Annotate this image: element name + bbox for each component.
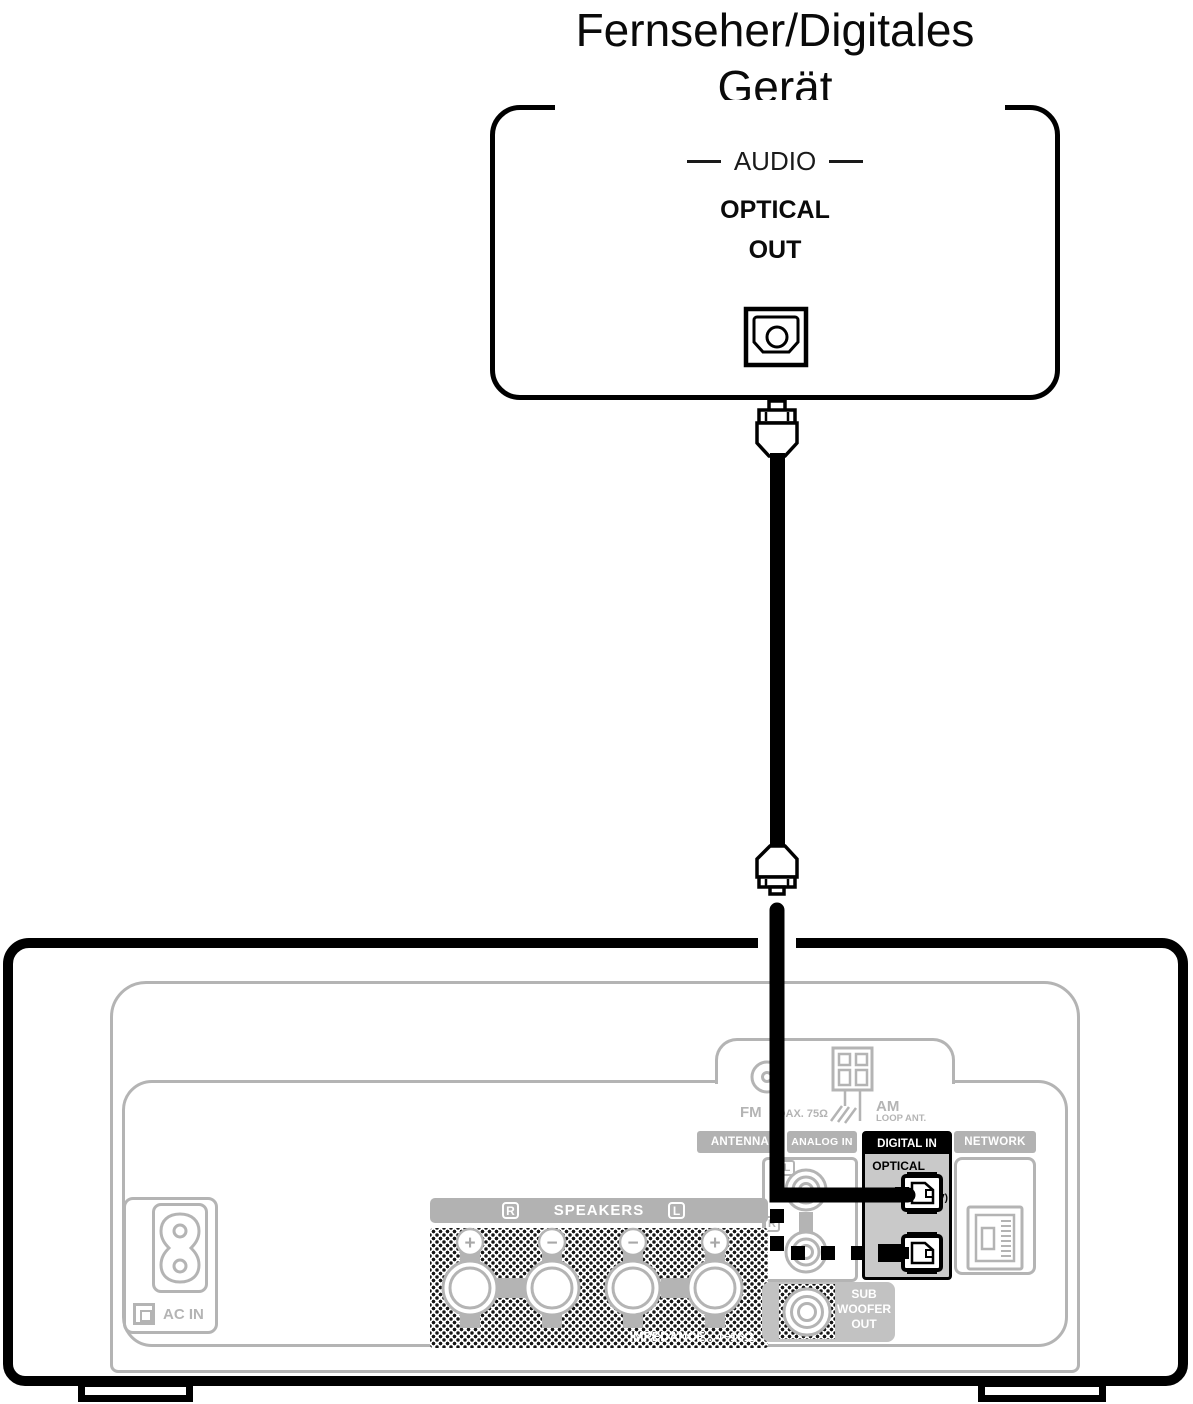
terminal-sign-plus-r: + xyxy=(464,1233,475,1254)
connection-diagram: Fernseher/Digitales Gerät AUDIO OPTICAL … xyxy=(0,0,1193,1404)
terminal-sign-minus-r: − xyxy=(546,1233,557,1254)
terminal-sign-minus-l: − xyxy=(627,1233,638,1254)
ac-figure8-inlet-icon xyxy=(161,1214,199,1282)
optical-cable-upper xyxy=(770,453,785,848)
speaker-terminals-icon: + − − + xyxy=(443,1229,742,1328)
tv-optical-out-port-icon xyxy=(746,309,806,365)
subwoofer-rca-jack-icon xyxy=(784,1289,830,1335)
ground-symbol-icon xyxy=(831,1106,856,1123)
terminal-sign-plus-l: + xyxy=(709,1233,720,1254)
diagram-graphics: + − − + xyxy=(0,0,1193,1404)
optical-cable-bottom-connector-icon xyxy=(757,846,797,894)
optical-cable-top-connector-icon xyxy=(757,401,797,456)
ethernet-jack-icon xyxy=(968,1207,1022,1269)
